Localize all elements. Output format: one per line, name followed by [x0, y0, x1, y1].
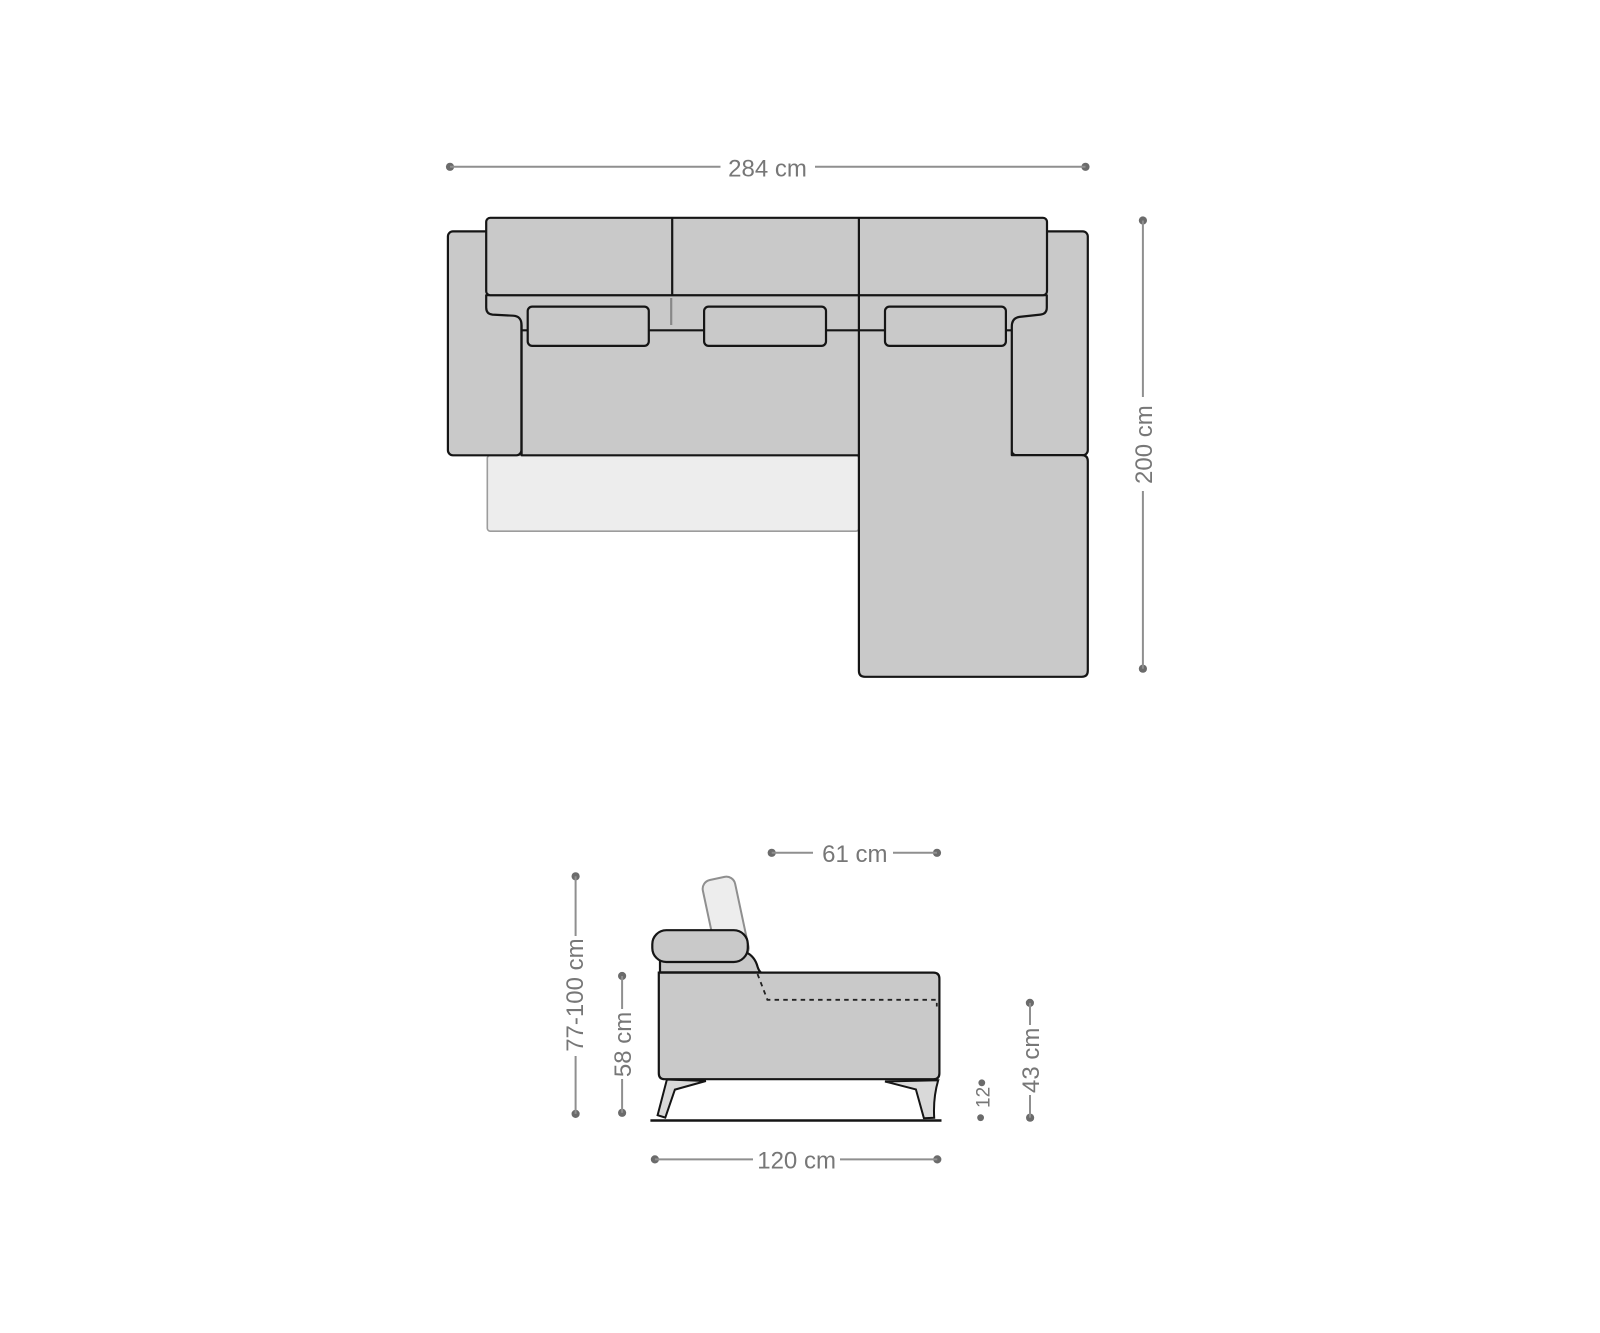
svg-text:12: 12 — [973, 1087, 994, 1108]
svg-text:58 cm: 58 cm — [610, 1012, 637, 1077]
svg-text:43 cm: 43 cm — [1018, 1028, 1045, 1093]
svg-text:284 cm: 284 cm — [728, 155, 807, 182]
svg-text:120 cm: 120 cm — [757, 1147, 836, 1174]
svg-text:61 cm: 61 cm — [822, 841, 887, 868]
svg-text:77-100 cm: 77-100 cm — [562, 938, 589, 1051]
svg-text:200 cm: 200 cm — [1131, 405, 1158, 484]
